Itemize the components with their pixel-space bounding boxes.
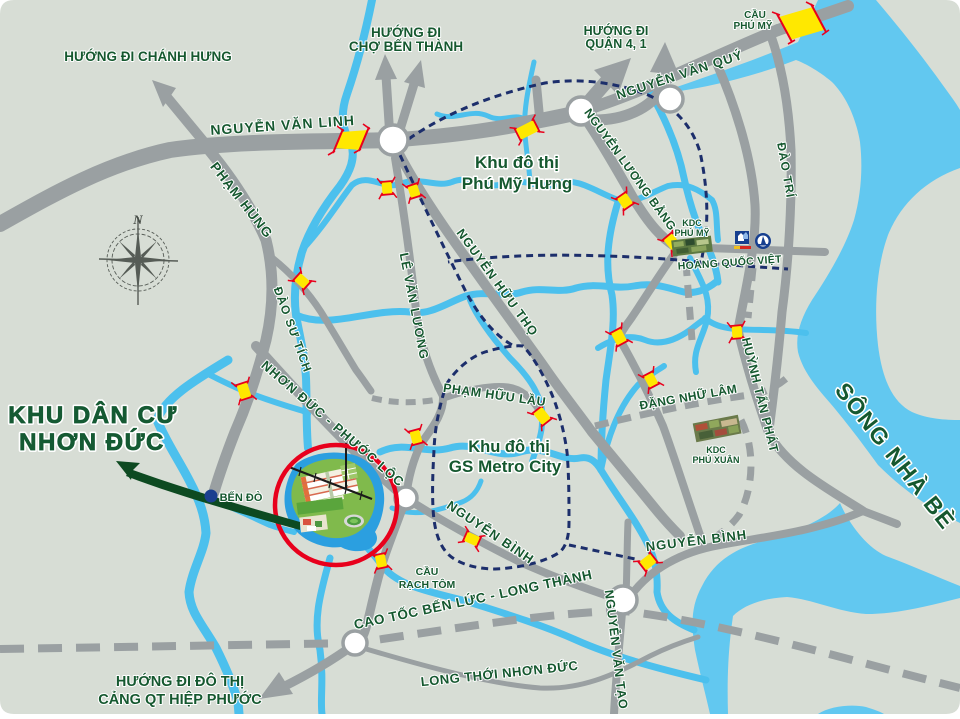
svg-text:CẦU: CẦU: [416, 565, 439, 578]
svg-text:KDC: KDC: [682, 218, 702, 228]
svg-text:Khu đô thị: Khu đô thị: [468, 438, 550, 456]
svg-text:PHÚ XUÂN: PHÚ XUÂN: [692, 454, 739, 465]
svg-text:KDC: KDC: [706, 445, 726, 455]
svg-text:QUẬN 4, 1: QUẬN 4, 1: [585, 36, 646, 51]
svg-text:NHƠN ĐỨC: NHƠN ĐỨC: [19, 428, 165, 456]
svg-text:PHÚ MỸ: PHÚ MỸ: [734, 19, 773, 32]
svg-text:HƯỚNG ĐI: HƯỚNG ĐI: [584, 23, 649, 38]
svg-text:BẾN ĐÒ: BẾN ĐÒ: [220, 491, 263, 504]
svg-text:PHÚ MỸ: PHÚ MỸ: [674, 227, 709, 238]
svg-text:CẦU: CẦU: [744, 8, 766, 21]
svg-text:CHỢ BẾN THÀNH: CHỢ BẾN THÀNH: [349, 39, 463, 54]
svg-text:CẢNG QT HIỆP PHƯỚC: CẢNG QT HIỆP PHƯỚC: [98, 690, 262, 708]
svg-text:HƯỚNG ĐI: HƯỚNG ĐI: [371, 25, 441, 40]
svg-text:HƯỚNG ĐI ĐÔ THỊ: HƯỚNG ĐI ĐÔ THỊ: [116, 672, 244, 690]
svg-text:RẠCH TÔM: RẠCH TÔM: [399, 578, 456, 591]
svg-text:Khu đô thị: Khu đô thị: [475, 153, 559, 172]
svg-text:N: N: [132, 212, 143, 227]
svg-text:Phú Mỹ Hưng: Phú Mỹ Hưng: [462, 174, 573, 193]
svg-text:KHU DÂN CƯ: KHU DÂN CƯ: [8, 401, 178, 429]
svg-text:GS Metro City: GS Metro City: [449, 457, 562, 476]
svg-text:HƯỚNG ĐI CHÁNH HƯNG: HƯỚNG ĐI CHÁNH HƯNG: [64, 49, 231, 64]
